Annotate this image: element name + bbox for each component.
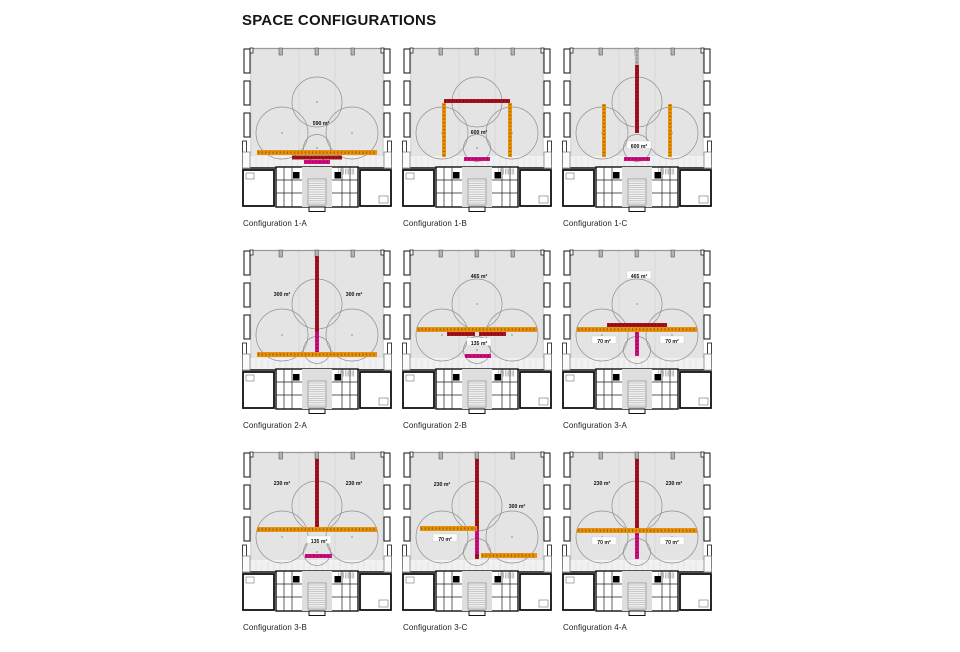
svg-text:465 m²: 465 m² — [471, 274, 488, 280]
svg-text:135 m²: 135 m² — [311, 539, 328, 545]
configuration-cell-3b: 230 m²230 m²135 m² Configuration 3-B — [240, 450, 400, 633]
svg-text:70 m²: 70 m² — [665, 339, 679, 345]
floor-plan-3a: 465 m²70 m²70 m² — [562, 248, 712, 418]
configuration-label: Configuration 4-A — [563, 623, 720, 633]
configuration-label: Configuration 2-B — [403, 421, 560, 431]
svg-text:300 m²: 300 m² — [346, 292, 363, 298]
svg-text:300 m²: 300 m² — [274, 292, 291, 298]
configuration-cell-3c: 230 m²300 m²70 m² Configuration 3-C — [400, 450, 560, 633]
svg-text:230 m²: 230 m² — [666, 481, 683, 487]
floor-plan-3b: 230 m²230 m²135 m² — [242, 450, 392, 620]
configuration-label: Configuration 2-A — [243, 421, 400, 431]
svg-text:300 m²: 300 m² — [509, 504, 526, 510]
configuration-cell-4a: 230 m²230 m²70 m²70 m² Configuration 4-A — [560, 450, 720, 633]
svg-text:70 m²: 70 m² — [597, 540, 611, 546]
configuration-label: Configuration 1-B — [403, 219, 560, 229]
page-title: SPACE CONFIGURATIONS — [242, 12, 726, 30]
configuration-cell-1c: 600 m² Configuration 1-C — [560, 46, 720, 229]
configuration-cell-2b: 465 m²135 m² Configuration 2-B — [400, 248, 560, 431]
svg-text:465 m²: 465 m² — [631, 274, 648, 280]
configuration-cell-3a: 465 m²70 m²70 m² Configuration 3-A — [560, 248, 720, 431]
figure-canvas: SPACE CONFIGURATIONS 590 m² Configuratio… — [240, 12, 726, 652]
floor-plan-1b: 600 m² — [402, 46, 552, 216]
floor-plan-3c: 230 m²300 m²70 m² — [402, 450, 552, 620]
svg-text:600 m²: 600 m² — [631, 144, 648, 150]
floor-plan-2a: 300 m²300 m² — [242, 248, 392, 418]
configurations-grid: 590 m² Configuration 1-A 600 m² Configur… — [240, 46, 726, 652]
svg-text:230 m²: 230 m² — [346, 481, 363, 487]
floor-plan-4a: 230 m²230 m²70 m²70 m² — [562, 450, 712, 620]
configuration-label: Configuration 1-A — [243, 219, 400, 229]
svg-text:70 m²: 70 m² — [438, 537, 452, 543]
configuration-cell-2a: 300 m²300 m² Configuration 2-A — [240, 248, 400, 431]
svg-text:70 m²: 70 m² — [665, 540, 679, 546]
svg-text:600 m²: 600 m² — [471, 130, 488, 136]
configuration-label: Configuration 1-C — [563, 219, 720, 229]
svg-text:135 m²: 135 m² — [471, 341, 488, 347]
floor-plan-1a: 590 m² — [242, 46, 392, 216]
configuration-cell-1a: 590 m² Configuration 1-A — [240, 46, 400, 229]
svg-text:230 m²: 230 m² — [594, 481, 611, 487]
configuration-label: Configuration 3-C — [403, 623, 560, 633]
svg-text:230 m²: 230 m² — [434, 482, 451, 488]
svg-text:70 m²: 70 m² — [597, 339, 611, 345]
floor-plan-1c: 600 m² — [562, 46, 712, 216]
floor-plan-2b: 465 m²135 m² — [402, 248, 552, 418]
svg-text:590 m²: 590 m² — [313, 121, 330, 127]
configuration-label: Configuration 3-B — [243, 623, 400, 633]
configuration-label: Configuration 3-A — [563, 421, 720, 431]
configuration-cell-1b: 600 m² Configuration 1-B — [400, 46, 560, 229]
svg-text:230 m²: 230 m² — [274, 481, 291, 487]
